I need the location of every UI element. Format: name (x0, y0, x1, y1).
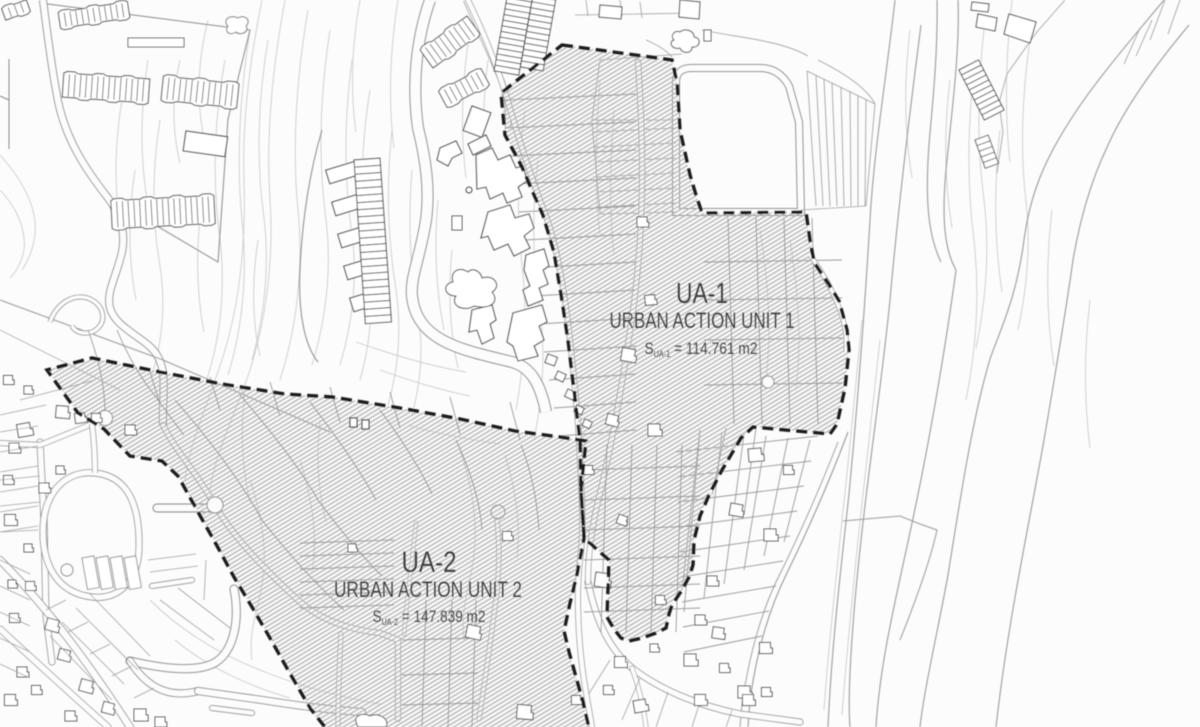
svg-text:UA-2: UA-2 (402, 546, 457, 579)
svg-text:UA-1: UA-1 (676, 278, 728, 310)
svg-text:URBAN ACTION UNIT 1: URBAN ACTION UNIT 1 (610, 308, 795, 333)
svg-text:URBAN ACTION UNIT 2: URBAN ACTION UNIT 2 (334, 577, 522, 602)
